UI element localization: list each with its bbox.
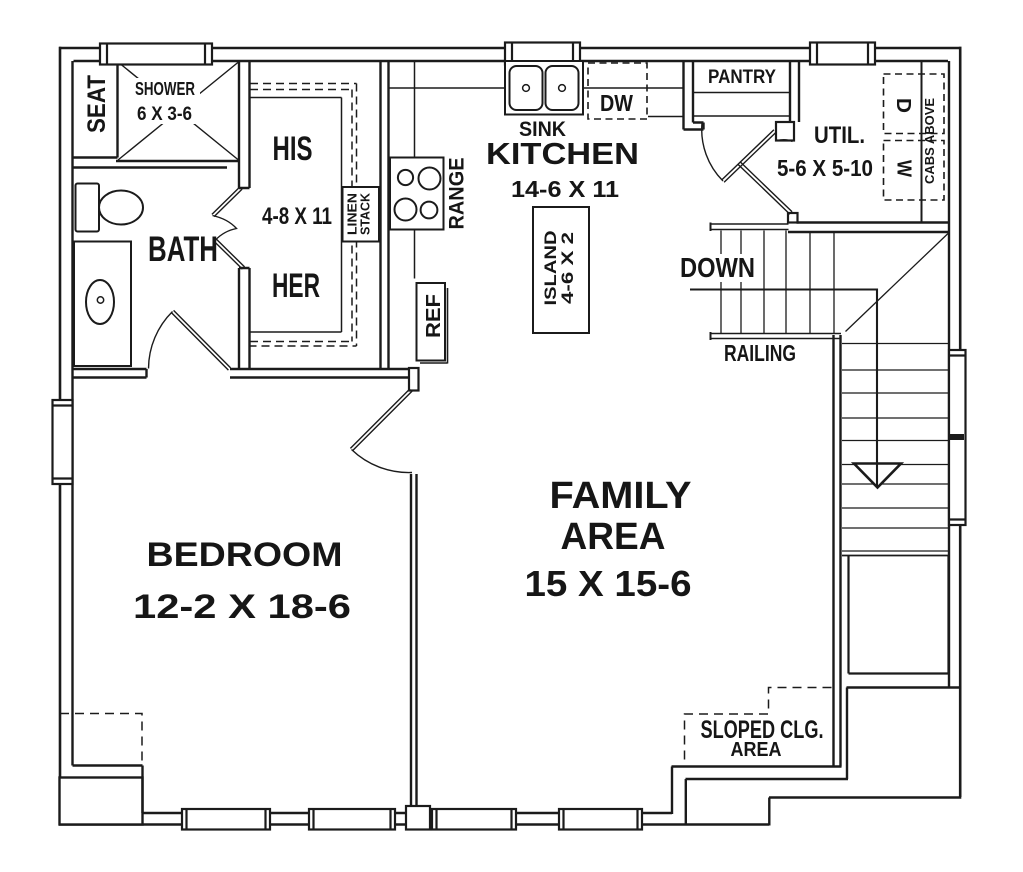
- svg-text:ISLAND: ISLAND: [542, 230, 560, 305]
- svg-text:BATH: BATH: [148, 230, 218, 269]
- svg-text:W: W: [893, 160, 915, 177]
- svg-text:RANGE: RANGE: [446, 158, 469, 230]
- svg-text:AREA: AREA: [561, 516, 666, 558]
- svg-text:D: D: [892, 98, 914, 113]
- svg-text:DOWN: DOWN: [680, 252, 755, 283]
- svg-text:CABS ABOVE: CABS ABOVE: [922, 98, 937, 184]
- svg-text:4-6 X 2: 4-6 X 2: [559, 232, 577, 304]
- svg-text:RAILING: RAILING: [724, 340, 796, 366]
- svg-text:LINEN: LINEN: [346, 193, 360, 235]
- svg-text:UTIL.: UTIL.: [814, 122, 865, 149]
- svg-text:12-2 X 18-6: 12-2 X 18-6: [133, 588, 351, 626]
- svg-text:5-6 X 5-10: 5-6 X 5-10: [777, 155, 873, 181]
- svg-text:BEDROOM: BEDROOM: [147, 536, 343, 574]
- svg-text:HIS: HIS: [273, 130, 313, 168]
- svg-text:AREA: AREA: [731, 739, 782, 761]
- svg-text:14-6 X 11: 14-6 X 11: [511, 176, 619, 202]
- svg-text:FAMILY: FAMILY: [550, 475, 692, 517]
- svg-text:KITCHEN: KITCHEN: [486, 136, 639, 171]
- svg-text:REF: REF: [423, 294, 445, 338]
- svg-text:SHOWER: SHOWER: [135, 79, 195, 99]
- svg-text:STACK: STACK: [359, 193, 373, 235]
- svg-text:15 X 15-6: 15 X 15-6: [525, 563, 692, 604]
- svg-text:SEAT: SEAT: [83, 75, 111, 133]
- svg-text:4-8 X 11: 4-8 X 11: [262, 203, 332, 230]
- svg-text:DW: DW: [600, 90, 633, 116]
- svg-text:PANTRY: PANTRY: [708, 66, 776, 88]
- svg-text:6 X 3-6: 6 X 3-6: [137, 104, 192, 125]
- svg-text:HER: HER: [272, 267, 320, 305]
